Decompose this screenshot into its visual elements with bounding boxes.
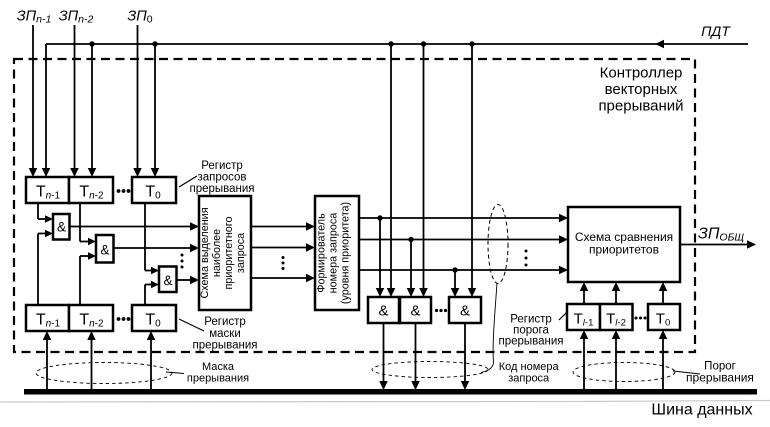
svg-text:&: & <box>378 303 388 320</box>
svg-text:Шина данных: Шина данных <box>651 402 752 419</box>
svg-text:прерывания: прерывания <box>686 371 754 385</box>
svg-text:Регистр: Регистр <box>201 160 243 172</box>
svg-text:Код номера: Код номера <box>499 361 560 373</box>
svg-text:&: & <box>410 303 420 320</box>
svg-text:маски: маски <box>209 328 241 340</box>
svg-text:Контроллер: Контроллер <box>600 65 683 82</box>
svg-text:ПДТ: ПДТ <box>701 23 731 39</box>
svg-text:&: & <box>100 243 109 258</box>
svg-text:векторных: векторных <box>605 81 678 98</box>
svg-text:&: & <box>57 220 66 235</box>
svg-text:Формирователь: Формирователь <box>316 213 328 293</box>
svg-text:прерывания: прерывания <box>187 373 249 385</box>
svg-text:запроса: запроса <box>235 233 247 273</box>
svg-text:прерывания: прерывания <box>189 183 254 195</box>
svg-text:&: & <box>163 273 172 288</box>
svg-text:номера запроса: номера запроса <box>328 213 340 294</box>
svg-text:приоритетов: приоритетов <box>589 243 659 257</box>
svg-text:Схема выделения: Схема выделения <box>199 207 211 298</box>
svg-text:&: & <box>460 303 470 320</box>
svg-text:Маска: Маска <box>202 361 235 373</box>
svg-text:прерывания: прерывания <box>498 336 563 348</box>
svg-text:запроса: запроса <box>508 373 550 385</box>
svg-text:наиболее: наиболее <box>211 229 223 277</box>
svg-text:приоритетного: приоритетного <box>223 216 235 289</box>
svg-text:(уровня приоритета): (уровня приоритета) <box>340 202 352 304</box>
svg-text:запросов: запросов <box>197 172 246 184</box>
svg-text:прерываний: прерываний <box>598 98 683 115</box>
svg-text:Регистр: Регистр <box>204 316 246 328</box>
svg-text:прерывания: прерывания <box>192 340 257 352</box>
